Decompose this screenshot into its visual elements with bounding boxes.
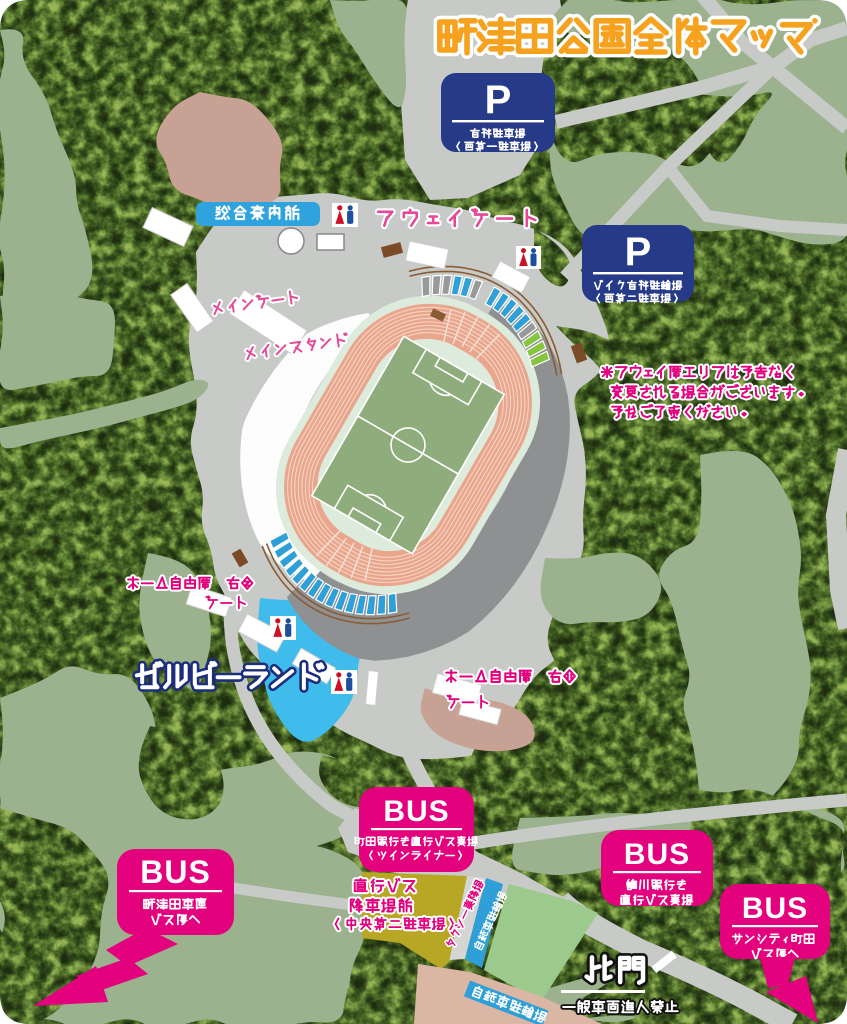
svg-text:BUS: BUS bbox=[383, 795, 449, 828]
svg-text:BUS: BUS bbox=[742, 892, 808, 925]
svg-text:P: P bbox=[625, 230, 652, 274]
svg-text:BUS: BUS bbox=[624, 838, 690, 871]
svg-text:P: P bbox=[485, 78, 512, 122]
svg-text:BUS: BUS bbox=[140, 854, 211, 890]
